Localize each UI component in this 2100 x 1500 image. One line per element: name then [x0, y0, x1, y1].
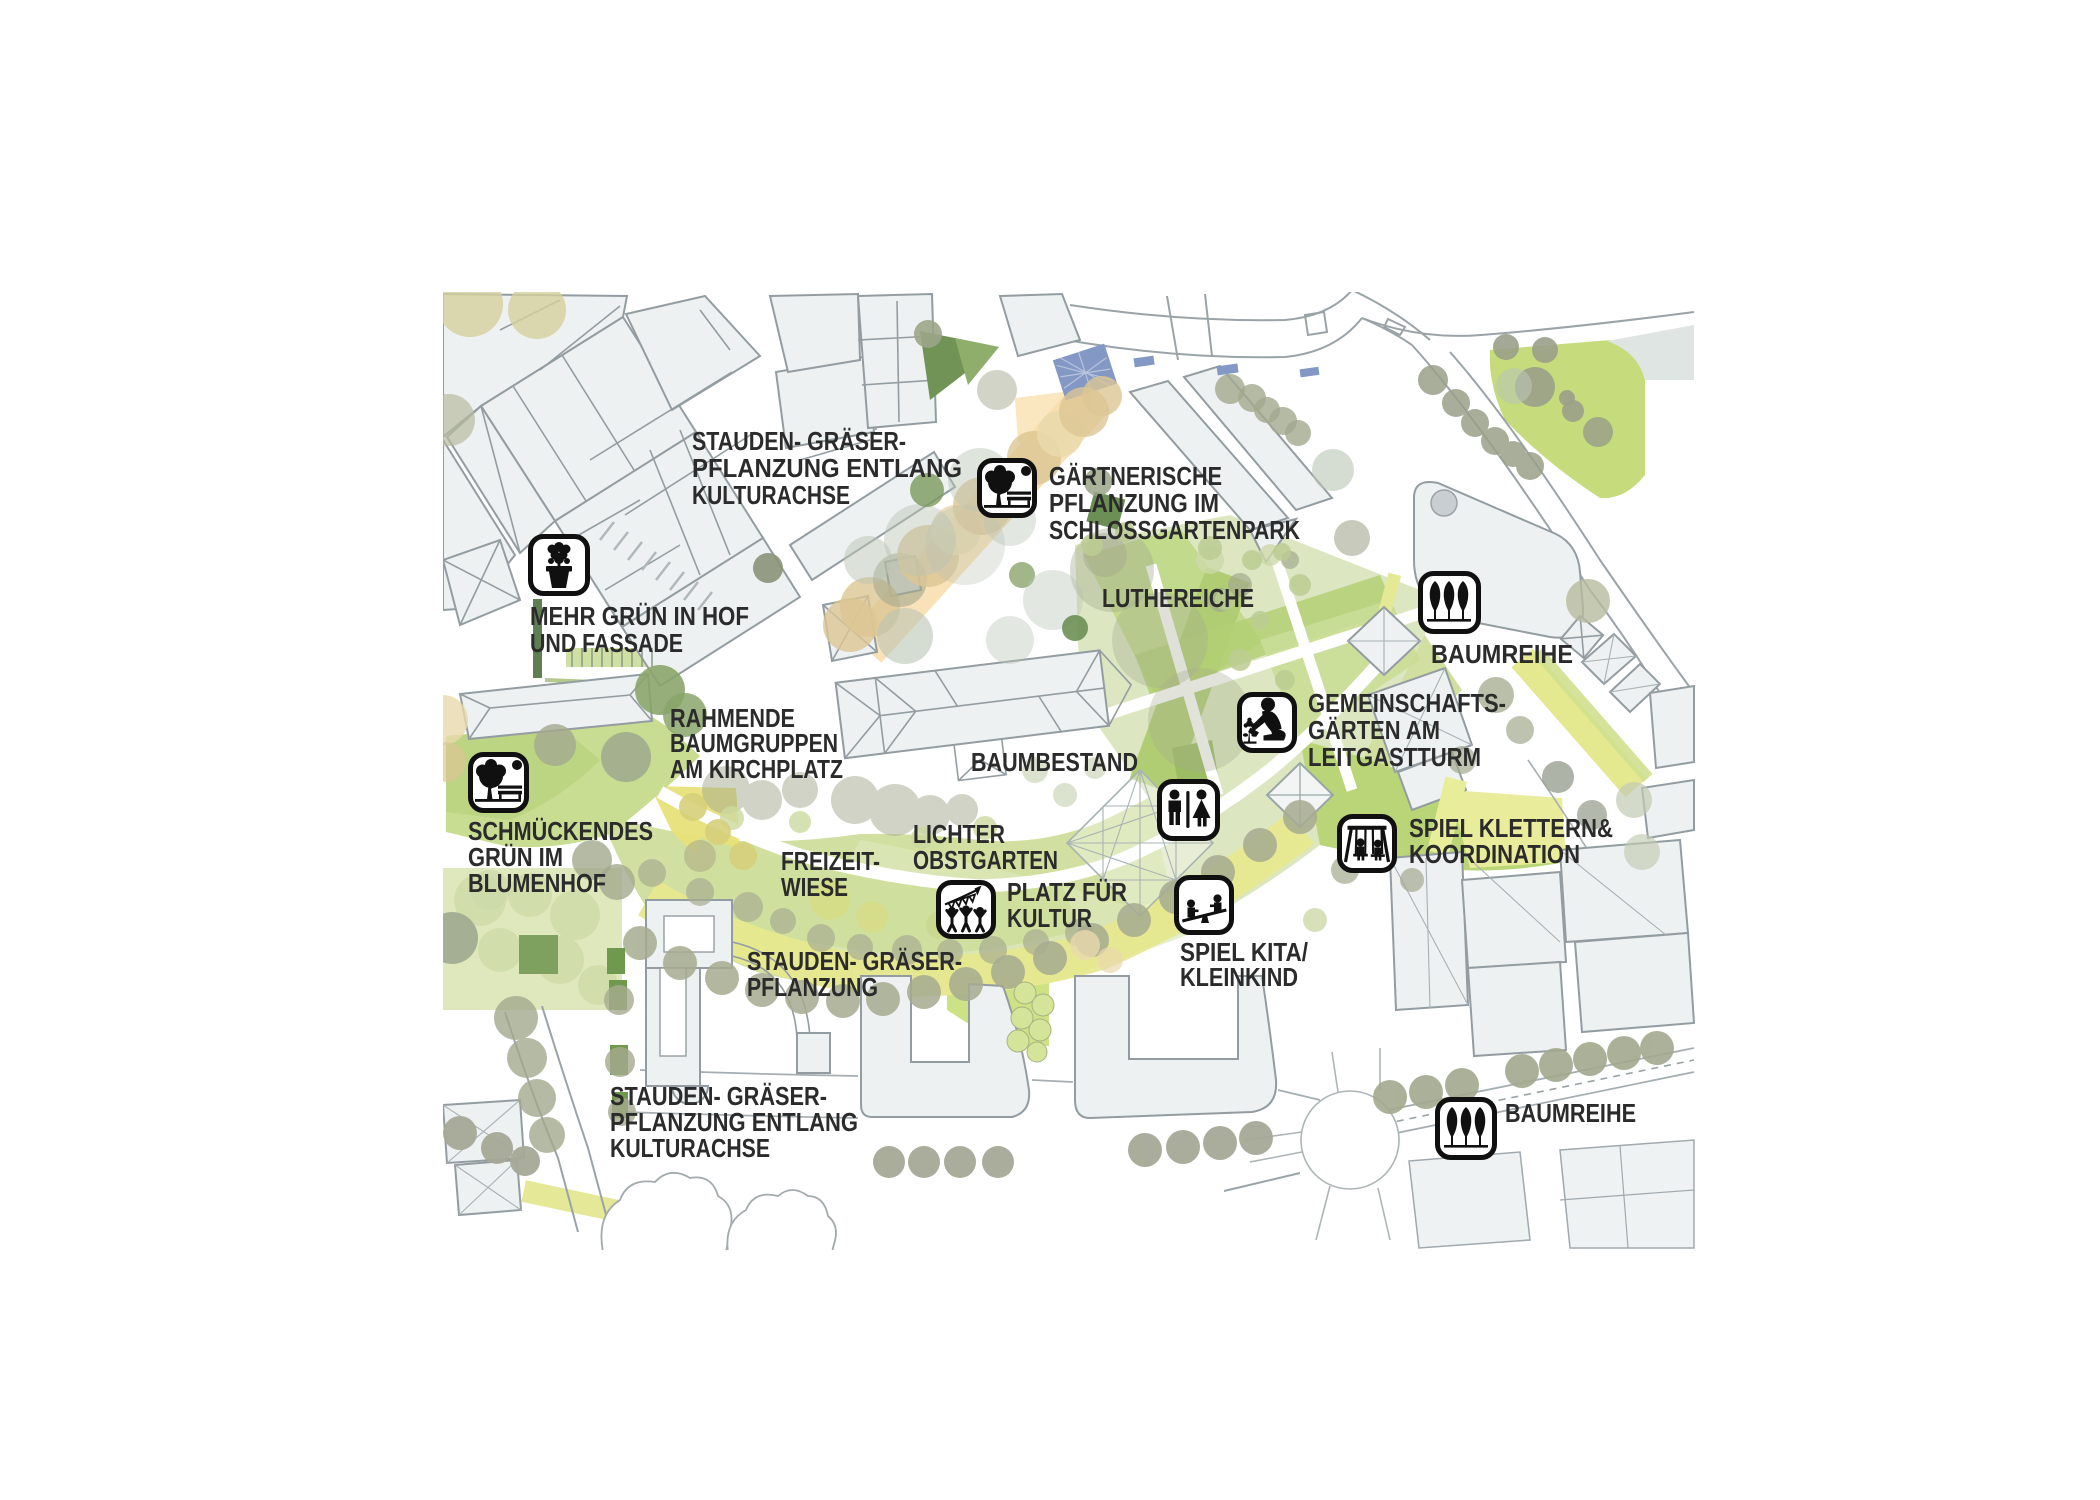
svg-text:WIESE: WIESE [781, 872, 848, 902]
svg-text:SCHLOSSGARTENPARK: SCHLOSSGARTENPARK [1049, 515, 1300, 545]
svg-text:STAUDEN- GRÄSER-: STAUDEN- GRÄSER- [692, 426, 906, 456]
svg-text:PFLANZUNG: PFLANZUNG [747, 972, 878, 1002]
svg-text:BAUMREIHE: BAUMREIHE [1431, 639, 1573, 669]
svg-text:PFLANZUNG IM: PFLANZUNG IM [1049, 488, 1219, 518]
svg-text:GEMEINSCHAFTS-: GEMEINSCHAFTS- [1308, 688, 1506, 718]
svg-text:BAUMBESTAND: BAUMBESTAND [971, 747, 1138, 777]
svg-text:KULTURACHSE: KULTURACHSE [610, 1133, 770, 1163]
svg-text:AM KIRCHPLATZ: AM KIRCHPLATZ [670, 754, 843, 784]
svg-text:MEHR GRÜN IN HOF: MEHR GRÜN IN HOF [530, 601, 749, 631]
svg-text:LUTHEREICHE: LUTHEREICHE [1102, 583, 1254, 613]
svg-text:GÄRTNERISCHE: GÄRTNERISCHE [1049, 461, 1222, 491]
svg-text:LEITGASTTURM: LEITGASTTURM [1308, 742, 1481, 772]
svg-text:KLEINKIND: KLEINKIND [1180, 962, 1298, 992]
svg-text:PFLANZUNG ENTLANG: PFLANZUNG ENTLANG [692, 453, 962, 483]
svg-text:OBSTGARTEN: OBSTGARTEN [913, 845, 1058, 875]
svg-text:GÄRTEN AM: GÄRTEN AM [1308, 715, 1440, 745]
svg-text:KULTUR: KULTUR [1007, 903, 1092, 933]
svg-text:KULTURACHSE: KULTURACHSE [692, 480, 850, 510]
svg-text:BAUMREIHE: BAUMREIHE [1505, 1098, 1636, 1128]
svg-text:KOORDINATION: KOORDINATION [1409, 839, 1580, 869]
svg-text:BLUMENHOF: BLUMENHOF [468, 868, 606, 898]
svg-text:UND FASSADE: UND FASSADE [530, 628, 683, 658]
